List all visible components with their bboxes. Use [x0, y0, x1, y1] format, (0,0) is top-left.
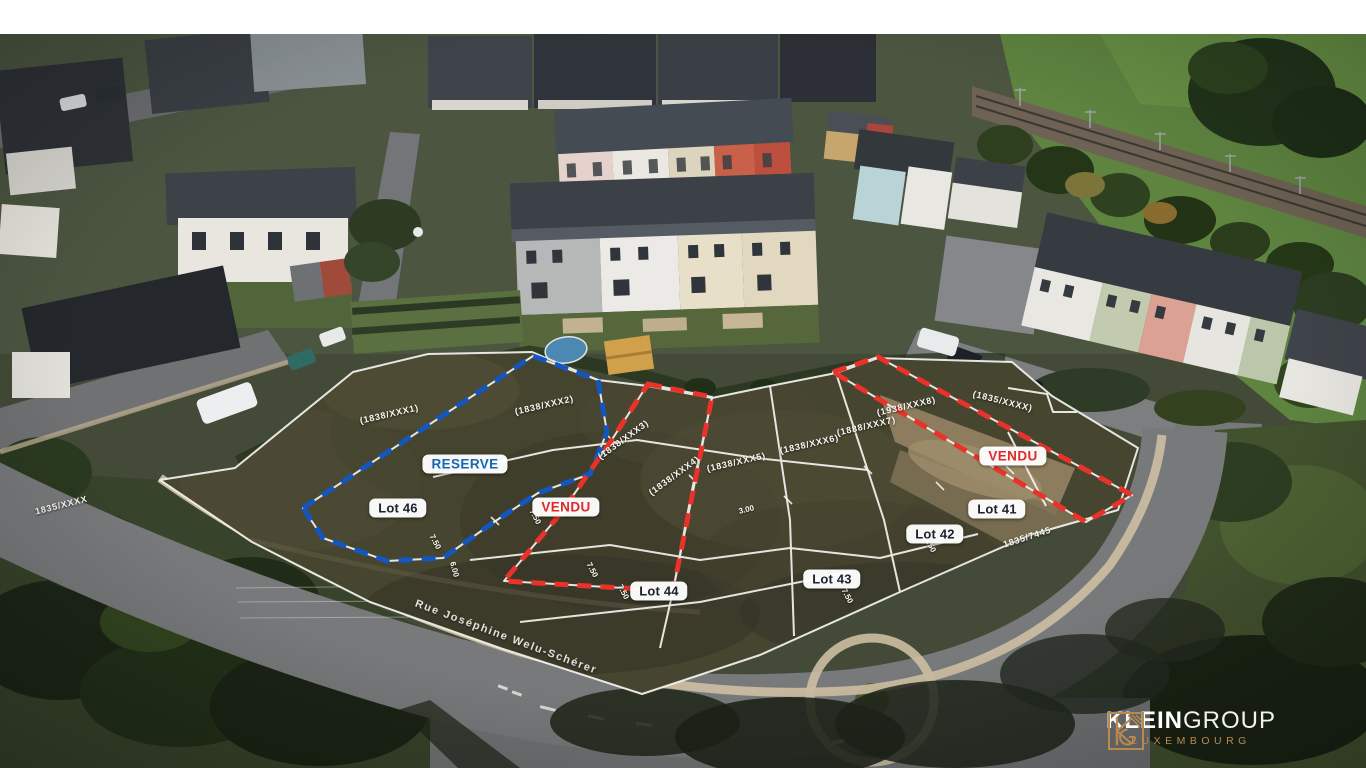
status-badge-vendu-left: VENDU: [532, 498, 599, 517]
vignette: [0, 34, 1366, 768]
status-badge-reserve: RESERVE: [422, 455, 507, 474]
letterbox-bar: [0, 0, 1366, 34]
brand-logo: KLEINGROUP LUXEMBOURG: [1106, 708, 1276, 747]
brand-name-secondary: GROUP: [1183, 707, 1276, 734]
lot-badge-46: Lot 46: [369, 499, 426, 518]
lot-badge-44: Lot 44: [630, 582, 687, 601]
lot-badge-42: Lot 42: [906, 525, 963, 544]
lot-badge-41: Lot 41: [968, 500, 1025, 519]
aerial-photo: Rue Joséphine Welu-Schérer (1838/XXX1) (…: [0, 0, 1366, 768]
status-badge-vendu-right: VENDU: [979, 447, 1046, 466]
brand-region: LUXEMBOURG: [1131, 735, 1251, 747]
screenshot-stage: Rue Joséphine Welu-Schérer (1838/XXX1) (…: [0, 0, 1366, 768]
logo-monogram-icon: [1106, 708, 1146, 754]
lot-badge-43: Lot 43: [803, 570, 860, 589]
